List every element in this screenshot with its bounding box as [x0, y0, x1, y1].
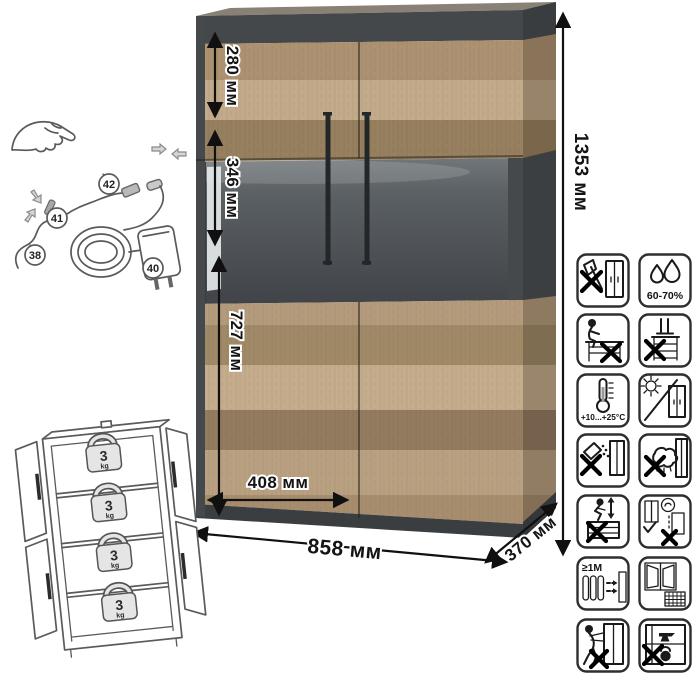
temperature-label: +10...+25°C [581, 412, 625, 422]
heat-distance-label: ≥1M [582, 562, 603, 574]
shelf-load-sketch: 3 kg 3 kg 3 kg 3 kg [13, 413, 208, 661]
care-icon-no-abrasive-cleaners [578, 435, 629, 487]
glass-right-frame [508, 158, 523, 301]
plug-connector [146, 179, 163, 191]
dim-total-width: 858 мм [307, 535, 383, 564]
led-glow [130, 160, 470, 184]
humidity-label: 60-70% [647, 290, 684, 302]
dim-total-height: 1353 мм [570, 133, 591, 211]
side-glass-band [523, 150, 556, 300]
callout-41: 41 [47, 208, 67, 228]
care-icon-no-wet-cloth [640, 435, 691, 487]
care-icon-no-jumping [578, 496, 629, 548]
care-icon-heat-distance: ≥1M [578, 558, 629, 610]
svg-text:kg: kg [111, 562, 120, 570]
dim-door-width: 408 мм [248, 473, 309, 492]
dim-top-section: 280 мм [223, 46, 242, 107]
care-icon-wall-mount-properly [640, 496, 691, 548]
care-icon-no-sitting [578, 315, 629, 367]
callout-40: 40 [143, 258, 163, 278]
care-icon-temperature: +10...+25°C [578, 375, 629, 427]
care-icon-humidity: 60-70% [640, 255, 691, 307]
led-kit-sketch: 42 41 38 40 [12, 122, 186, 292]
product-spec-sheet: 280 мм 346 мм 727 мм 408 мм 858 мм 370 м… [0, 0, 700, 678]
svg-text:41: 41 [51, 213, 63, 225]
sketch-lock [101, 421, 112, 428]
strip-connector [121, 183, 140, 198]
care-icon-no-heavy-items [640, 620, 691, 672]
svg-text:38: 38 [29, 250, 41, 262]
callout-38: 38 [25, 245, 45, 265]
svg-text:kg: kg [106, 513, 115, 521]
dim-display-section: 346 мм [223, 158, 242, 219]
svg-text:kg: kg [116, 612, 125, 620]
power-adapter [137, 225, 183, 291]
care-icon-grid: 60-70% +10...+25°C [578, 255, 691, 672]
callout-42: 42 [99, 174, 119, 194]
cabinet-photo [130, 2, 556, 538]
hand-icon [12, 122, 75, 152]
front-crown [196, 10, 523, 44]
svg-text:kg: kg [100, 463, 109, 471]
care-icon-no-standing [640, 315, 691, 367]
care-icon-no-sharp-tools [578, 255, 629, 307]
care-icon-ventilate-room [640, 558, 691, 610]
svg-text:40: 40 [147, 263, 159, 275]
spec-canvas: 280 мм 346 мм 727 мм 408 мм 858 мм 370 м… [0, 0, 700, 678]
svg-text:42: 42 [103, 179, 115, 191]
care-icon-avoid-sunlight [640, 375, 691, 427]
care-icon-no-dragging [578, 620, 629, 672]
dim-lower-section: 727 мм [227, 311, 246, 372]
left-edge [196, 16, 205, 517]
